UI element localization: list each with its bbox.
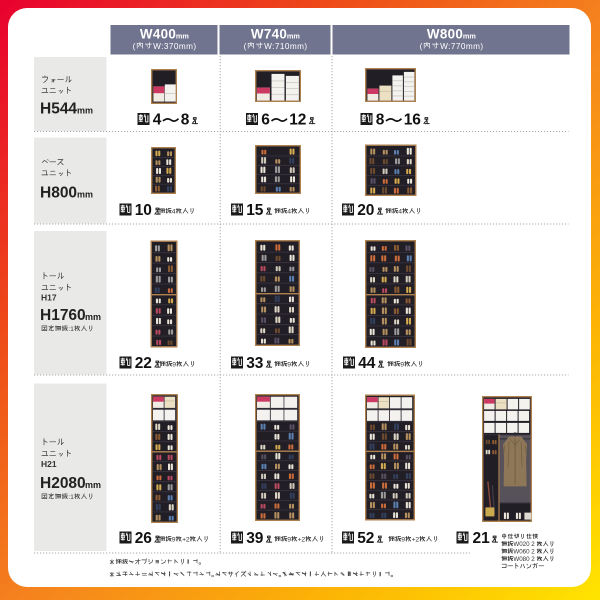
svg-text:mm: mm xyxy=(77,190,93,200)
svg-text:4: 4 xyxy=(153,112,162,129)
svg-text:H2080: H2080 xyxy=(40,475,86,492)
svg-text:H17: H17 xyxy=(41,293,57,303)
svg-text:9: 9 xyxy=(172,362,176,369)
svg-text:8: 8 xyxy=(376,112,385,129)
svg-text:9: 9 xyxy=(287,362,291,369)
svg-text:(: ( xyxy=(133,42,136,51)
svg-text:(: ( xyxy=(420,42,423,51)
svg-text:9: 9 xyxy=(287,537,291,544)
svg-text:W740: W740 xyxy=(251,26,287,41)
svg-text:44: 44 xyxy=(358,355,376,372)
svg-text:52: 52 xyxy=(357,530,374,547)
svg-text:W060 2: W060 2 xyxy=(513,549,535,556)
svg-text:+2: +2 xyxy=(298,537,306,544)
svg-text:8: 8 xyxy=(181,112,190,129)
svg-text:mm: mm xyxy=(287,31,300,40)
svg-text:mm: mm xyxy=(85,312,101,322)
svg-text:mm: mm xyxy=(85,480,101,490)
svg-text:10: 10 xyxy=(135,202,152,219)
svg-text:26: 26 xyxy=(135,530,153,547)
svg-text:+2: +2 xyxy=(412,537,420,544)
svg-text:16: 16 xyxy=(404,112,422,129)
svg-text:4: 4 xyxy=(172,209,176,216)
svg-text:6: 6 xyxy=(261,112,270,129)
svg-text:H21: H21 xyxy=(41,459,57,469)
svg-text:+2: +2 xyxy=(182,537,190,544)
svg-text:9: 9 xyxy=(172,537,176,544)
svg-text:9: 9 xyxy=(400,362,404,369)
svg-text:W:710mm): W:710mm) xyxy=(264,42,307,51)
svg-text:mm: mm xyxy=(77,106,93,116)
svg-text:W:770mm): W:770mm) xyxy=(440,42,483,51)
svg-text:W800: W800 xyxy=(427,26,463,41)
svg-text:22: 22 xyxy=(135,355,152,372)
svg-text:mm: mm xyxy=(176,31,189,40)
svg-text:21: 21 xyxy=(473,530,491,547)
svg-text:20: 20 xyxy=(357,202,374,219)
svg-text:mm: mm xyxy=(463,31,476,40)
svg-text:15: 15 xyxy=(246,202,264,219)
svg-text:W:370mm): W:370mm) xyxy=(153,42,196,51)
svg-text:H800: H800 xyxy=(40,185,77,202)
svg-text:33: 33 xyxy=(246,355,264,372)
svg-text:39: 39 xyxy=(246,530,264,547)
svg-text:W080 2: W080 2 xyxy=(513,556,535,563)
svg-text:H1760: H1760 xyxy=(40,307,86,324)
svg-text:W400: W400 xyxy=(140,26,176,41)
svg-text:9: 9 xyxy=(401,537,405,544)
svg-text:(: ( xyxy=(244,42,247,51)
svg-text:4: 4 xyxy=(398,209,402,216)
svg-text:W020 2: W020 2 xyxy=(513,541,535,548)
svg-text:H544: H544 xyxy=(40,101,77,118)
svg-text:4: 4 xyxy=(287,209,291,216)
svg-text::1: :1 xyxy=(68,494,74,501)
svg-text::1: :1 xyxy=(68,326,74,333)
svg-text:12: 12 xyxy=(289,112,306,129)
